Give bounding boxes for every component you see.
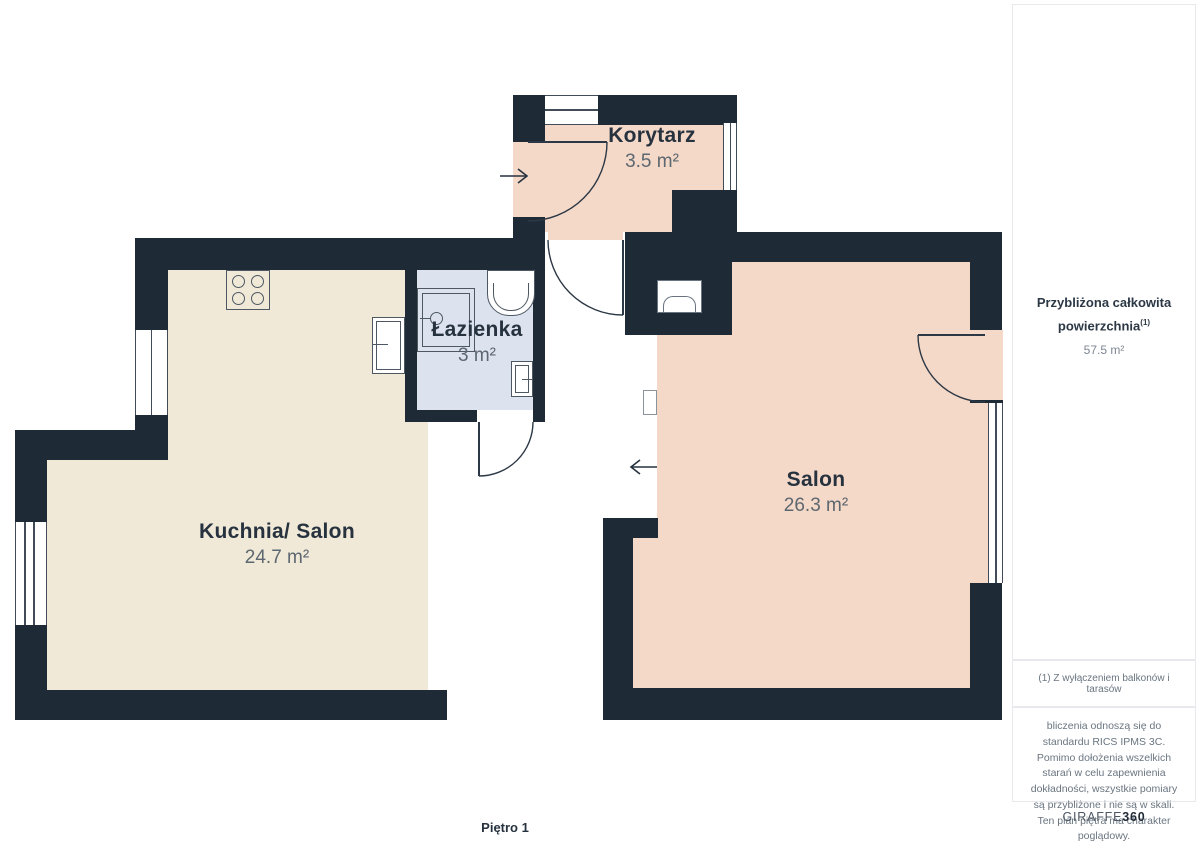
window-frame-line bbox=[24, 522, 26, 625]
room-name: Łazienka bbox=[431, 318, 522, 342]
wall bbox=[513, 217, 545, 270]
wall bbox=[513, 95, 545, 142]
window-frame-line bbox=[730, 123, 732, 190]
footnote-text: (1) Z wyłączeniem balkonów i tarasów bbox=[1021, 673, 1187, 695]
wall bbox=[603, 518, 658, 538]
stove-symbol bbox=[226, 270, 270, 310]
door-arc bbox=[479, 422, 533, 476]
floor-caption: Piętro 1 bbox=[481, 820, 529, 835]
wall bbox=[15, 690, 447, 720]
room-area: 3.5 m² bbox=[608, 151, 696, 173]
salon-entrance-arrow-icon bbox=[631, 460, 657, 474]
shower-drain-tick bbox=[420, 318, 431, 319]
room-label-korytarz: Korytarz 3.5 m² bbox=[608, 124, 696, 173]
disclaimer-text: bliczenia odnoszą się do standardu RICS … bbox=[1013, 708, 1195, 849]
stove-burner-icon bbox=[232, 275, 245, 288]
window-frame-line bbox=[33, 522, 35, 625]
window-symbol bbox=[545, 95, 598, 125]
window-symbol bbox=[15, 522, 47, 625]
total-area-title-line2: powierzchnia(1) bbox=[1013, 313, 1195, 336]
kitchen-floor bbox=[47, 460, 428, 690]
logo-suffix-text: 360 bbox=[1122, 810, 1145, 824]
room-area: 26.3 m² bbox=[784, 495, 848, 517]
radiator-tick bbox=[522, 379, 532, 380]
footnote-marker: (1) bbox=[1140, 318, 1150, 327]
window-symbol bbox=[135, 330, 168, 415]
radiator-tick bbox=[373, 344, 388, 345]
kitchen-floor bbox=[168, 422, 428, 460]
stove-burner-icon bbox=[232, 292, 245, 305]
korytarz-floor bbox=[545, 190, 672, 232]
floor-plan-page: Korytarz 3.5 m² Łazienka 3 m² Kuchnia/ S… bbox=[0, 0, 1200, 849]
korytarz-floor bbox=[548, 232, 623, 240]
total-area-block: Przybliżona całkowita powierzchnia(1) 57… bbox=[1013, 293, 1195, 357]
wall bbox=[135, 270, 168, 330]
toilet-symbol bbox=[487, 270, 535, 316]
wall bbox=[405, 270, 417, 422]
stove-burner-icon bbox=[251, 275, 264, 288]
toilet-bowl-line bbox=[493, 283, 529, 311]
room-label-lazienka: Łazienka 3 m² bbox=[431, 318, 522, 367]
window-recess-floor bbox=[970, 403, 988, 583]
balcony-door-recess-floor bbox=[970, 330, 1003, 400]
wall bbox=[603, 688, 1002, 720]
niche-symbol bbox=[657, 280, 702, 313]
wall bbox=[672, 190, 737, 232]
window-symbol bbox=[723, 123, 737, 190]
wall bbox=[15, 430, 168, 460]
wall bbox=[603, 538, 633, 688]
entrance-recess-floor bbox=[513, 142, 545, 217]
wall bbox=[15, 460, 47, 522]
window-symbol bbox=[988, 403, 1003, 583]
radiator-inner-line bbox=[376, 321, 401, 370]
room-label-kuchnia-salon: Kuchnia/ Salon 24.7 m² bbox=[199, 520, 355, 569]
radiator-symbol bbox=[372, 317, 405, 374]
salon-floor bbox=[633, 518, 970, 688]
stove-burner-icon bbox=[251, 292, 264, 305]
total-area-value: 57.5 m² bbox=[1013, 343, 1195, 357]
window-frame-line bbox=[545, 109, 598, 111]
room-name: Korytarz bbox=[608, 124, 696, 148]
wall bbox=[970, 262, 1002, 330]
room-name: Salon bbox=[784, 468, 848, 492]
window-frame-line bbox=[151, 330, 153, 415]
room-name: Kuchnia/ Salon bbox=[199, 520, 355, 544]
giraffe360-logo: GIRAFFE360 bbox=[1012, 810, 1196, 824]
sidebar-total-area-panel: Przybliżona całkowita powierzchnia(1) 57… bbox=[1012, 4, 1196, 660]
window-frame-line bbox=[995, 403, 997, 583]
total-area-title-line1: Przybliżona całkowita bbox=[1013, 293, 1195, 313]
logo-brand-text: GIRAFFE bbox=[1062, 810, 1122, 824]
room-area: 24.7 m² bbox=[199, 547, 355, 569]
door-arc bbox=[548, 240, 623, 315]
sidebar-disclaimer-panel: bliczenia odnoszą się do standardu RICS … bbox=[1012, 707, 1196, 802]
niche-basin-line bbox=[663, 296, 696, 312]
wall bbox=[732, 232, 1002, 262]
total-area-title: Przybliżona całkowita powierzchnia(1) bbox=[1013, 293, 1195, 336]
room-label-salon: Salon 26.3 m² bbox=[784, 468, 848, 517]
kitchen-floor bbox=[168, 270, 405, 422]
wall bbox=[405, 410, 477, 422]
sidebar-footnote-panel: (1) Z wyłączeniem balkonów i tarasów bbox=[1012, 660, 1196, 707]
room-area: 3 m² bbox=[431, 345, 522, 367]
door-threshold bbox=[643, 390, 657, 415]
salon-floor bbox=[732, 262, 970, 335]
wall bbox=[135, 238, 545, 270]
